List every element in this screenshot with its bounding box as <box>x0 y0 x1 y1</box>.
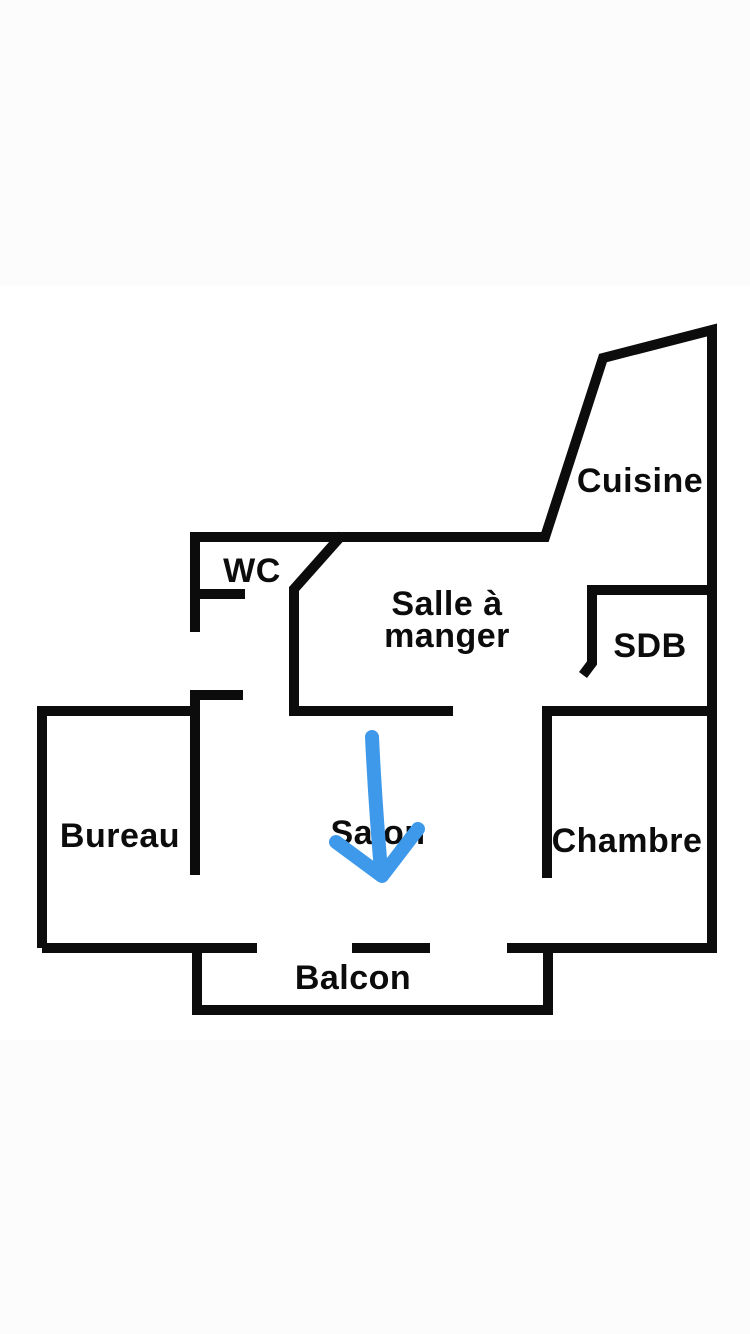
room-label-wc: WC <box>223 552 281 590</box>
room-label-cuisine: Cuisine <box>577 462 703 500</box>
arrow-annotation-down <box>336 737 418 876</box>
walls <box>42 330 712 1010</box>
room-label-chambre: Chambre <box>552 822 703 860</box>
floor-plan-screen: Cuisine WC Salle à manger SDB Bureau Sal… <box>0 0 750 1334</box>
room-label-sdb: SDB <box>613 627 686 665</box>
room-label-balcon: Balcon <box>295 959 411 997</box>
room-label-salle-a-manger-line2: manger <box>384 617 510 655</box>
room-labels: Cuisine WC Salle à manger SDB Bureau Sal… <box>60 462 703 997</box>
arrow-shaft <box>372 737 381 871</box>
floor-plan-drawing: Cuisine WC Salle à manger SDB Bureau Sal… <box>0 0 750 1334</box>
room-label-bureau: Bureau <box>60 817 180 855</box>
